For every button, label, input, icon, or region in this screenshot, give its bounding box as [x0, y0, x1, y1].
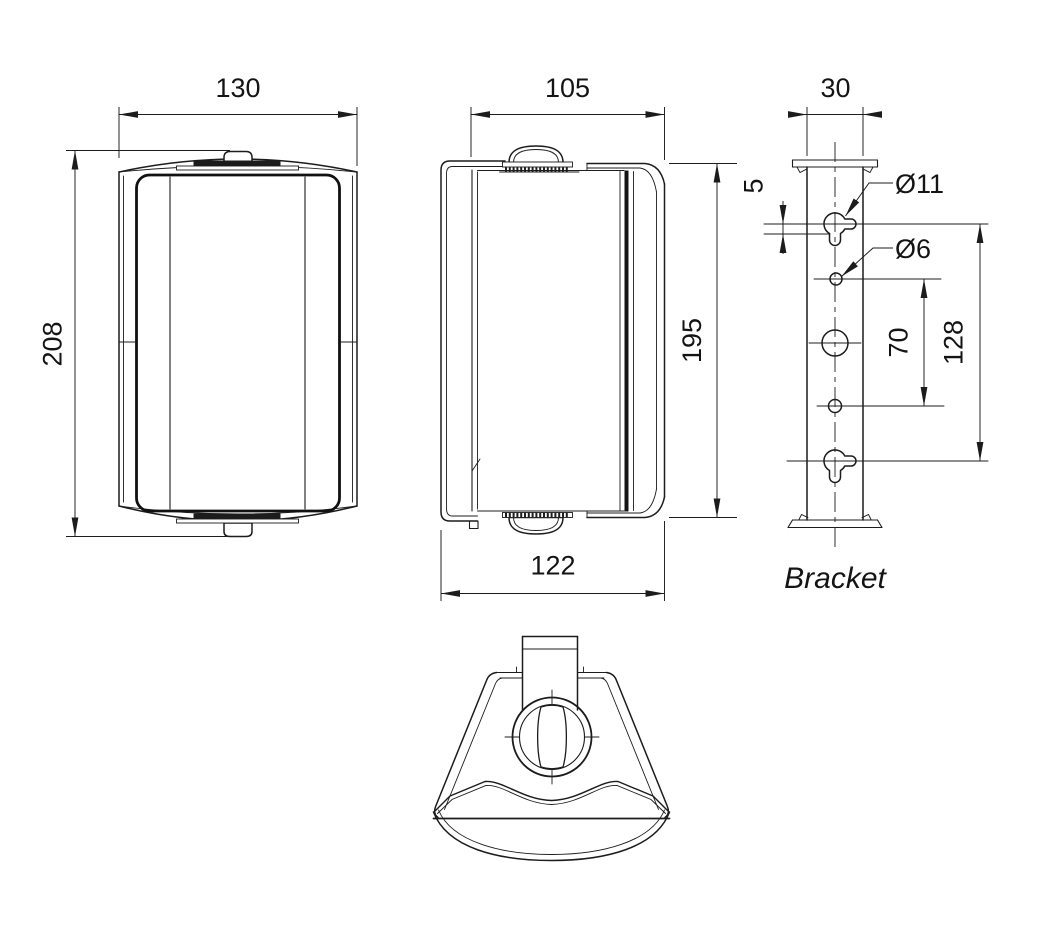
front-view: 130 208	[38, 73, 358, 537]
side-speaker-body	[472, 164, 665, 518]
speaker-dimension-drawing: 130 208	[0, 0, 1050, 950]
dim-front-height: 208	[38, 151, 231, 537]
side-mounting-knob-bottom	[503, 513, 573, 535]
front-mounting-knob-top	[177, 152, 299, 171]
dim-label-side-depth: 105	[545, 73, 590, 103]
side-mounting-knob-top	[500, 146, 580, 172]
dim-label-front-height: 208	[38, 321, 68, 366]
front-speaker-body	[119, 159, 357, 521]
callout-keyhole-diameter: Ø11	[843, 169, 944, 218]
front-mounting-knob-bottom	[177, 514, 299, 537]
side-wall-bracket	[441, 161, 505, 529]
technical-drawing-page: 130 208	[0, 0, 1050, 950]
keyhole-slot-top	[824, 213, 856, 246]
dim-label-mounting-span: 128	[939, 320, 969, 365]
bottom-ball-joint	[505, 690, 599, 784]
bottom-view	[434, 637, 670, 861]
bracket-view: 30 5 Ø11 Ø6 70 128 B	[739, 73, 989, 595]
side-view: 105 195 122	[441, 73, 737, 601]
dim-side-depth: 105	[471, 73, 665, 160]
dim-label-side-total-depth: 122	[530, 551, 575, 581]
bracket-holes	[822, 213, 856, 483]
callout-hole-diameter: Ø6	[839, 234, 931, 279]
dim-hole-spacing: 70	[884, 279, 928, 406]
front-grille	[137, 175, 340, 511]
dim-label-front-width: 130	[215, 73, 260, 103]
dim-label-keyhole-offset: 5	[739, 178, 769, 193]
dim-keyhole-offset: 5	[739, 178, 787, 254]
bottom-bracket-strap	[523, 637, 578, 711]
keyhole-slot-bottom	[824, 450, 856, 483]
dim-label-hole-spacing: 70	[884, 327, 914, 357]
label-keyhole-diameter: Ø11	[895, 169, 944, 199]
bracket-view-title: Bracket	[784, 562, 887, 595]
dim-mounting-span: 128	[939, 224, 984, 461]
label-hole-diameter: Ø6	[895, 234, 931, 264]
dim-side-height: 195	[669, 164, 737, 518]
dim-side-total-depth: 122	[441, 521, 665, 601]
dim-label-side-height: 195	[677, 318, 707, 363]
dim-label-bracket-width: 30	[820, 73, 850, 103]
